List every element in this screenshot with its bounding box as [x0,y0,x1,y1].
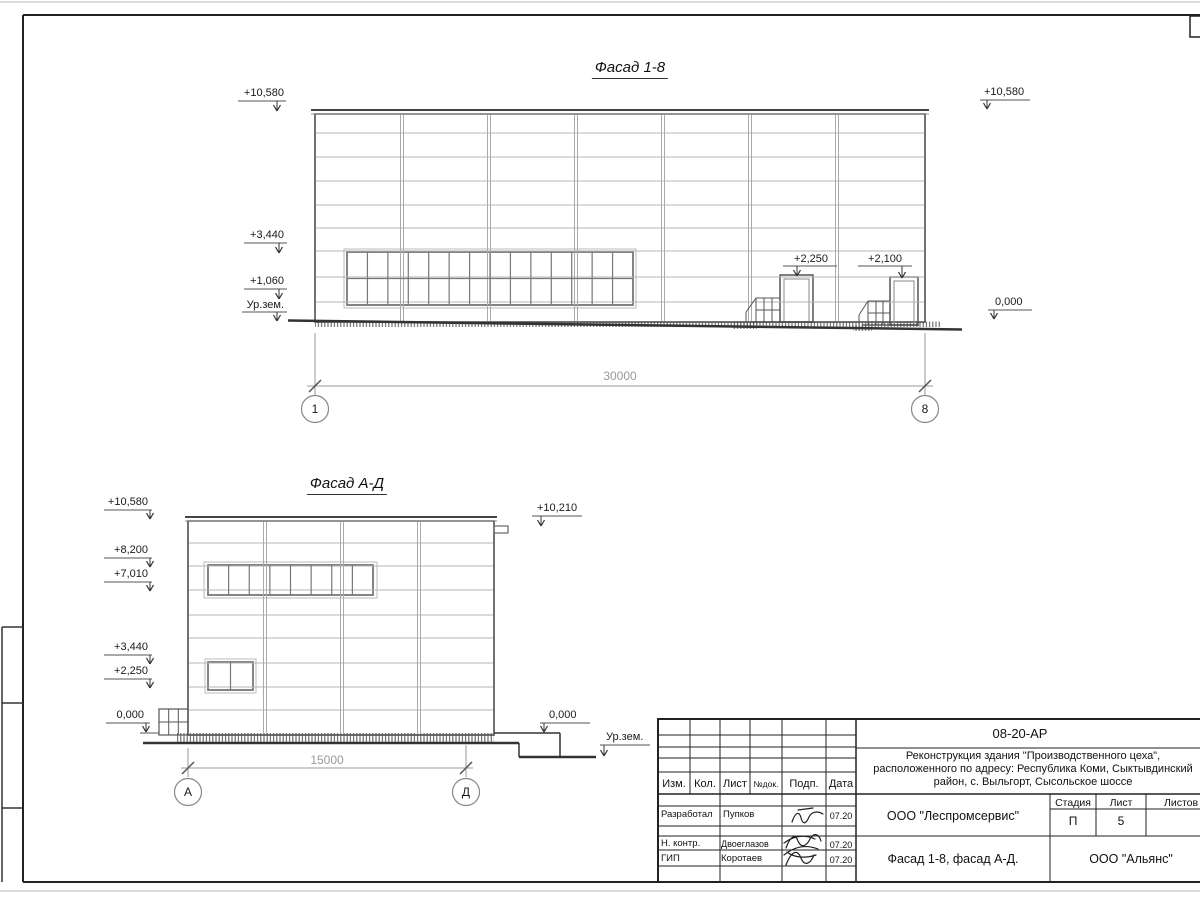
elevation-mark-door-1: +2,250 [794,253,828,266]
axis-bubble-1: 1 [312,403,319,417]
tb-date-gip: 07.20 [830,855,853,865]
elevation-mark-fad-left-1: +8,200 [64,544,148,557]
elevation-mark-door-2: +2,100 [868,253,902,266]
tb-role-gip: ГИП [661,854,680,865]
tb-list-value: 5 [1118,815,1125,829]
tb-role-ncontrol: Н. контр. [661,839,700,850]
tb-col-list: Лист [723,778,747,791]
elevation-mark-f18-left-0: +10,580 [196,87,284,100]
facade-a-d-title: Фасад А-Д [307,475,387,495]
tb-project-line3: район, с. Выльгорт, Сысольское шоссе [858,776,1200,788]
tb-stage-label: Стадия [1055,797,1091,809]
tb-date-developer: 07.20 [830,811,853,821]
tb-document-code: 08-20-АР [993,727,1048,742]
tb-project-line2: расположенного по адресу: Республика Ком… [858,763,1200,775]
tb-name-gip: Коротаев [721,854,762,865]
dimension-30000: 30000 [603,370,636,384]
tb-role-developer: Разработал [661,810,713,821]
tb-stage-value: П [1069,815,1078,829]
tb-col-data: Дата [829,778,853,791]
elevation-mark-fad-left-3: +3,440 [64,641,148,654]
tb-col-kol: Кол. [694,778,716,791]
elevation-mark-fad-left-4: +2,250 [64,665,148,678]
ground-level-label-fad: Ур.зем. [606,731,643,744]
facade-1-8-title: Фасад 1-8 [592,59,668,79]
elevation-mark-f18-left-2: +1,060 [200,275,284,288]
elevation-mark-f18-right-0: +10,580 [984,86,1024,99]
elevation-mark-fad-left-5: 0,000 [68,709,144,722]
tb-name-developer: Пупков [723,810,754,821]
tb-col-podp: Подп. [789,778,818,791]
elevation-mark-fad-left-2: +7,010 [64,568,148,581]
tb-col-izm: Изм. [662,778,686,791]
elevation-mark-fad-left-0: +10,580 [64,496,148,509]
ground-level-label-f18: Ур.зем. [200,299,284,312]
axis-bubble-a: А [184,786,192,800]
tb-project-line1: Реконструкция здания "Производственного … [858,750,1200,762]
dimension-15000: 15000 [310,754,343,768]
tb-org-middle: ООО "Леспромсервис" [887,809,1019,823]
elevation-mark-fad-right-1: 0,000 [549,709,577,722]
tb-sheet-title: Фасад 1-8, фасад А-Д. [887,852,1018,866]
elevation-mark-f18-left-1: +3,440 [200,229,284,242]
tb-list-label: Лист [1110,797,1133,809]
tb-name-ncontrol: Двоеглазов [721,839,769,849]
elevation-mark-fad-right-0: +10,210 [537,502,577,515]
tb-col-ndok: №док. [754,780,779,790]
axis-bubble-d: Д [462,786,470,800]
tb-listov-label: Листов [1164,797,1198,809]
tb-date-ncontrol: 07.20 [830,840,853,850]
drawing-sheet: Фасад 1-8 +10,580 +3,440 +1,060 Ур.зем. … [0,0,1200,900]
tb-org-right: ООО "Альянс" [1089,852,1173,866]
elevation-mark-f18-right-1: 0,000 [995,296,1023,309]
axis-bubble-8: 8 [922,403,929,417]
